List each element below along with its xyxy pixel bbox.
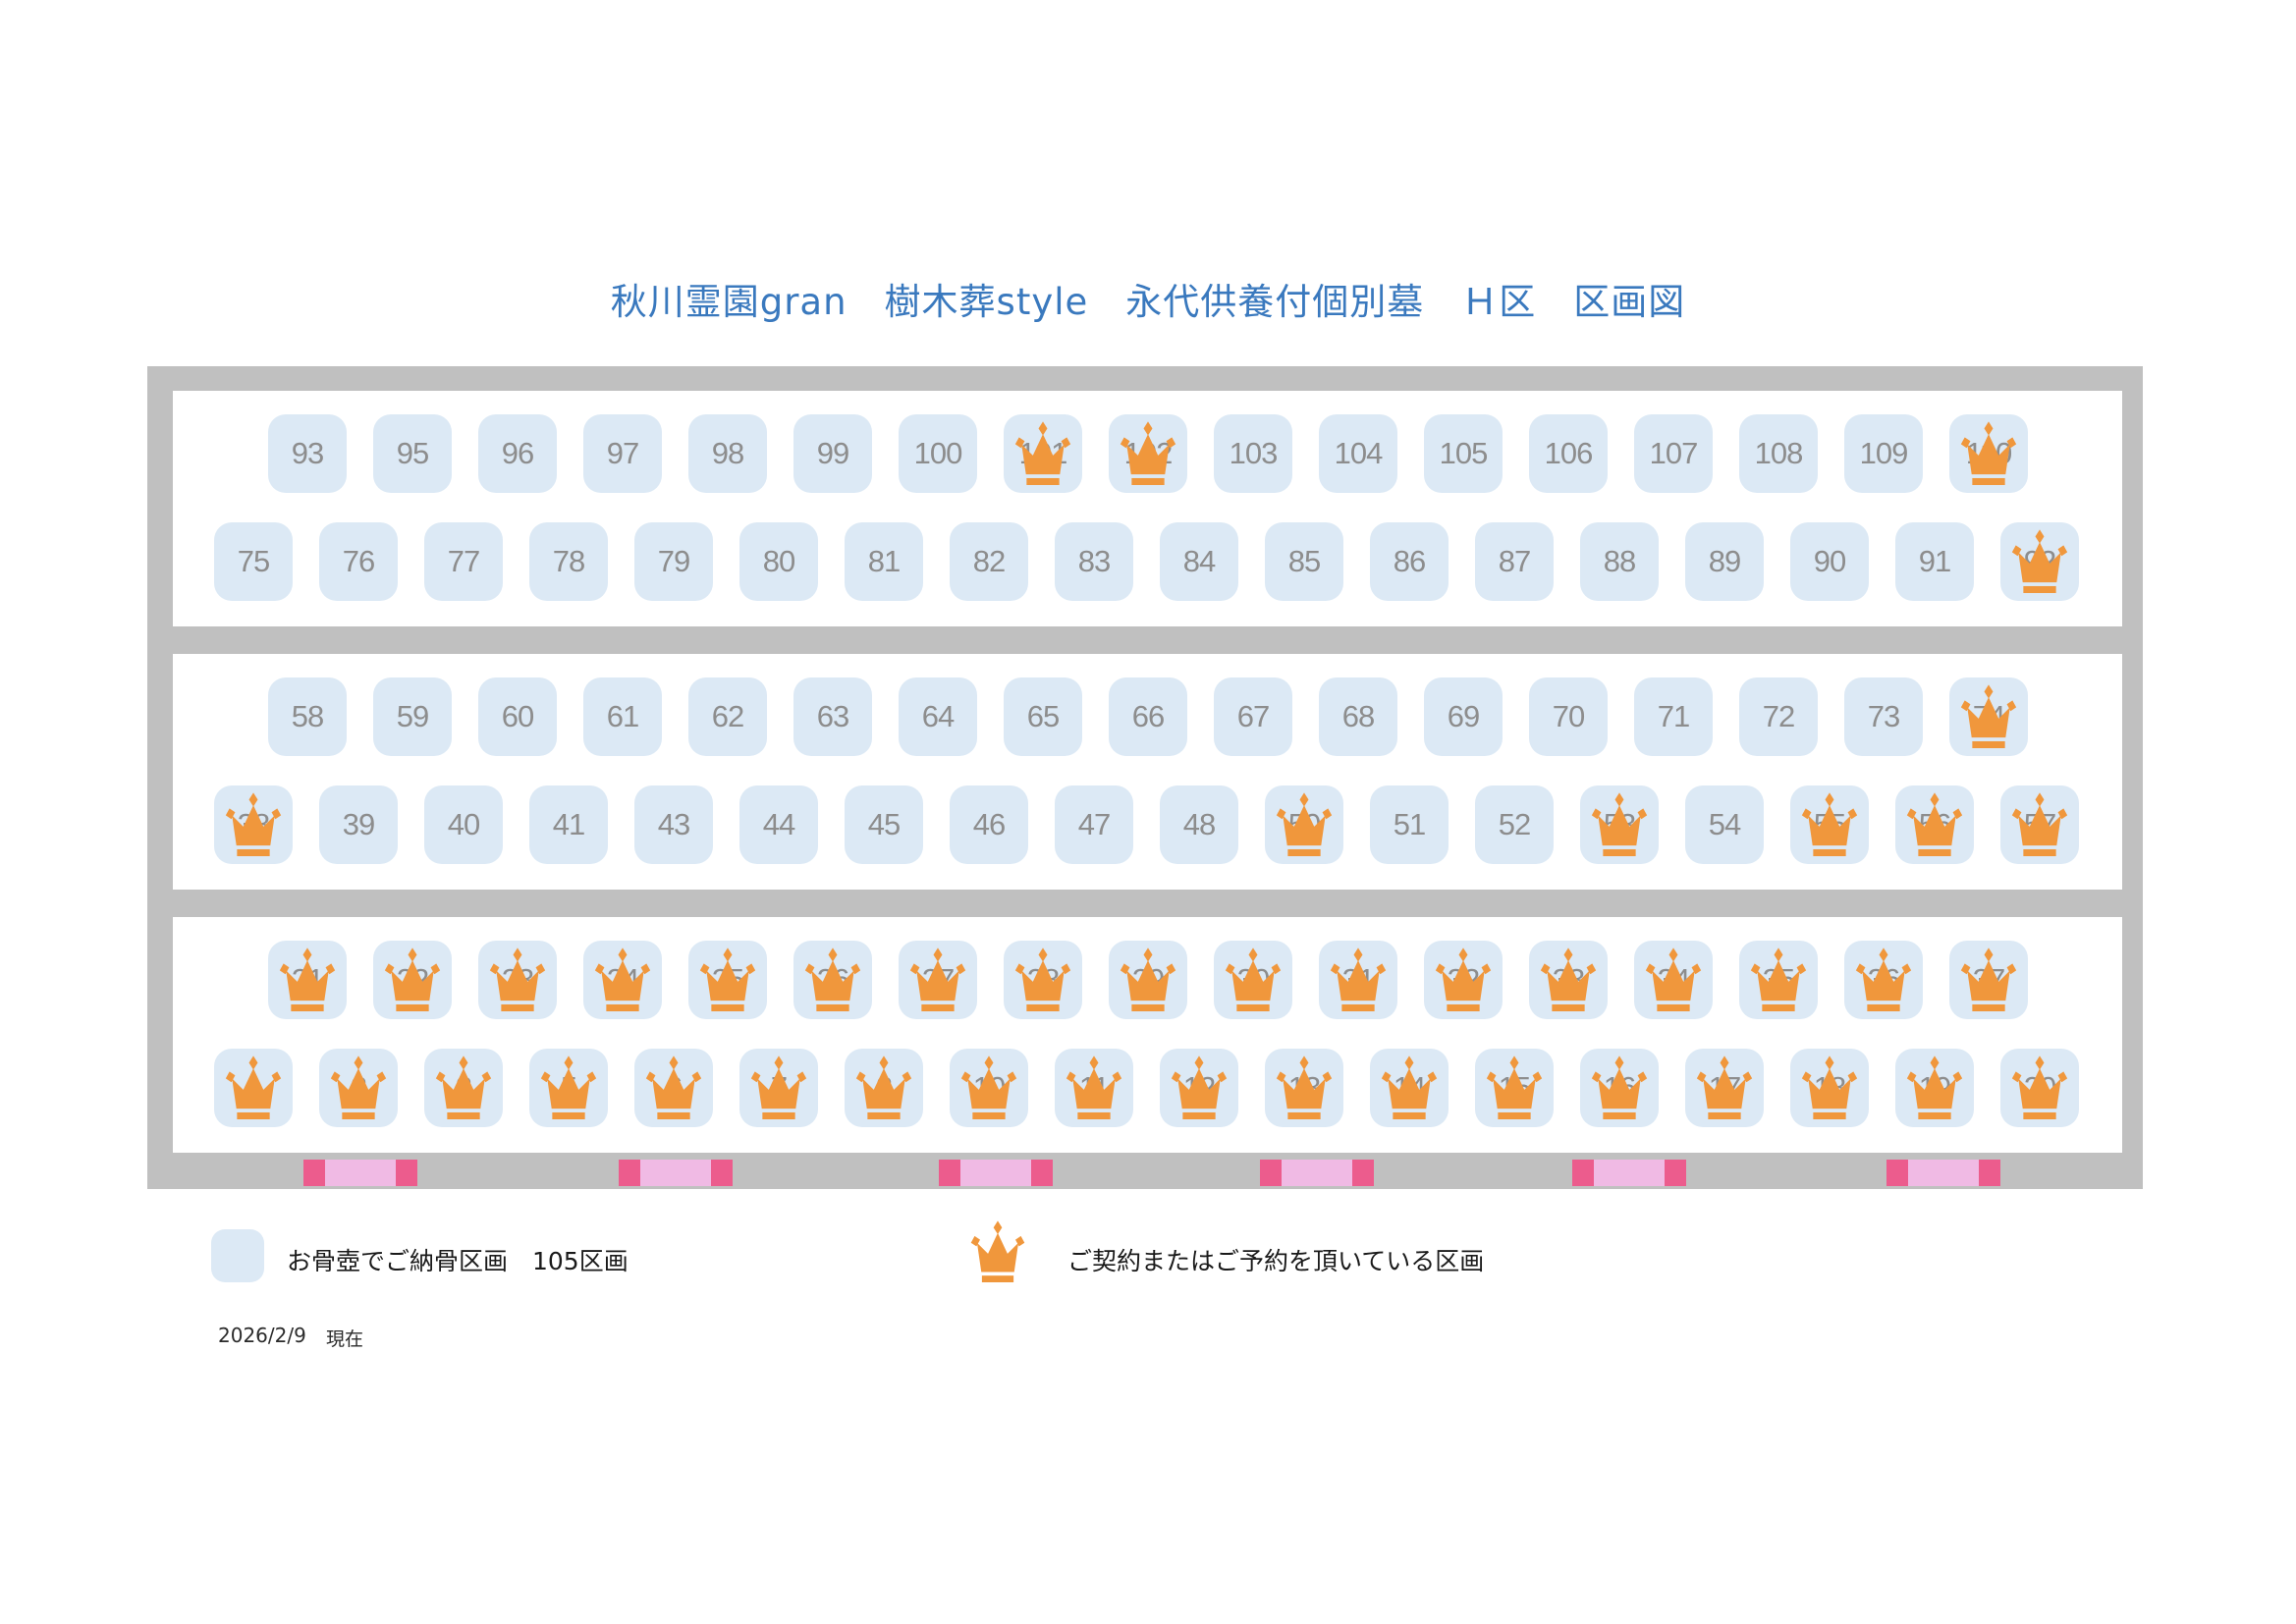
crown-icon xyxy=(1693,1052,1756,1124)
plot-cell-2: 2 xyxy=(319,1049,398,1127)
crown-icon xyxy=(1011,417,1074,490)
plot-cell-107: 107 xyxy=(1634,414,1713,493)
plot-cell-90: 90 xyxy=(1790,522,1869,601)
map-frame: 939596979899100101 102 10310410510610710… xyxy=(147,366,2143,1189)
plot-number: 58 xyxy=(292,699,323,734)
crown-icon xyxy=(1747,944,1810,1016)
marker-dark-segment xyxy=(1260,1160,1282,1186)
footer-date: 2026/2/9 xyxy=(218,1324,306,1347)
plot-number: 41 xyxy=(553,807,584,842)
plot-cell-36: 36 xyxy=(1844,941,1923,1019)
crown-icon xyxy=(381,944,444,1016)
marker-light-segment xyxy=(1908,1160,1979,1186)
plot-cell-74: 74 xyxy=(1949,677,2028,756)
plot-cell-95: 95 xyxy=(373,414,452,493)
plot-cell-56: 56 xyxy=(1895,785,1974,864)
plot-cell-10: 10 xyxy=(950,1049,1028,1127)
marker-light-segment xyxy=(325,1160,396,1186)
page-title: 秋川霊園gran 樹木葬style 永代供養付個別墓 Ｈ区 区画図 xyxy=(0,281,2296,324)
plot-number: 68 xyxy=(1342,699,1374,734)
crown-icon xyxy=(327,1052,390,1124)
plot-number: 81 xyxy=(868,544,900,579)
plot-cell-51: 51 xyxy=(1370,785,1449,864)
plot-cell-6: 6 xyxy=(634,1049,713,1127)
plot-cell-11: 11 xyxy=(1055,1049,1133,1127)
marker-dark-segment xyxy=(711,1160,733,1186)
marker-dark-segment xyxy=(619,1160,640,1186)
crown-icon xyxy=(1327,944,1390,1016)
footer-asof-label: 現在 xyxy=(326,1325,363,1351)
plot-number: 66 xyxy=(1132,699,1164,734)
plot-number: 105 xyxy=(1440,436,1488,471)
plot-cell-21: 21 xyxy=(268,941,347,1019)
map-row-3: 21 22 23 24 25 26 27 xyxy=(173,917,2122,1153)
plot-number: 44 xyxy=(763,807,794,842)
map-row-1: 939596979899100101 102 10310410510610710… xyxy=(173,391,2122,626)
crown-icon xyxy=(222,1052,285,1124)
crown-icon xyxy=(642,1052,705,1124)
crown-icon xyxy=(1273,788,1336,861)
plot-number: 48 xyxy=(1183,807,1215,842)
plot-number: 54 xyxy=(1709,807,1740,842)
plot-number: 64 xyxy=(922,699,954,734)
crown-icon xyxy=(222,788,285,861)
crown-icon xyxy=(1852,944,1915,1016)
plot-cell-19: 19 xyxy=(1895,1049,1974,1127)
plot-number: 89 xyxy=(1709,544,1740,579)
crown-icon xyxy=(537,1052,600,1124)
marker-dark-segment xyxy=(1886,1160,1908,1186)
plot-cell-80: 80 xyxy=(739,522,818,601)
plot-number: 80 xyxy=(763,544,794,579)
plot-number: 46 xyxy=(973,807,1005,842)
crown-icon xyxy=(1798,788,1861,861)
plot-cell-53: 53 xyxy=(1580,785,1659,864)
marker-light-segment xyxy=(640,1160,711,1186)
plot-cell-41: 41 xyxy=(529,785,608,864)
plot-cell-30: 30 xyxy=(1214,941,1292,1019)
plot-number: 88 xyxy=(1604,544,1635,579)
plot-number: 83 xyxy=(1078,544,1110,579)
plot-cell-79: 79 xyxy=(634,522,713,601)
plot-number: 78 xyxy=(553,544,584,579)
plot-cell-88: 88 xyxy=(1580,522,1659,601)
plot-cell-103: 103 xyxy=(1214,414,1292,493)
plot-cell-62: 62 xyxy=(688,677,767,756)
plot-number: 91 xyxy=(1919,544,1950,579)
plot-number: 82 xyxy=(973,544,1005,579)
plot-number: 45 xyxy=(868,807,900,842)
crown-icon xyxy=(1117,417,1179,490)
legend-crown xyxy=(967,1218,1028,1286)
crown-icon xyxy=(1798,1052,1861,1124)
plot-cell-17: 17 xyxy=(1685,1049,1764,1127)
plot-cell-60: 60 xyxy=(478,677,557,756)
plot-line: 939596979899100101 102 10310410510610710… xyxy=(268,414,2028,493)
plot-cell-86: 86 xyxy=(1370,522,1449,601)
plot-cell-31: 31 xyxy=(1319,941,1397,1019)
plot-cell-35: 35 xyxy=(1739,941,1818,1019)
crown-icon xyxy=(1957,680,2020,753)
plot-number: 40 xyxy=(448,807,479,842)
marker-light-segment xyxy=(960,1160,1031,1186)
plot-cell-105: 105 xyxy=(1424,414,1503,493)
plot-cell-87: 87 xyxy=(1475,522,1554,601)
crown-icon xyxy=(1537,944,1600,1016)
plot-number: 84 xyxy=(1183,544,1215,579)
crown-icon xyxy=(1063,1052,1125,1124)
plot-number: 108 xyxy=(1755,436,1803,471)
plot-cell-45: 45 xyxy=(845,785,923,864)
crown-icon xyxy=(801,944,864,1016)
legend-urn-label: お骨壺でご納骨区画 105区画 xyxy=(287,1242,629,1277)
path-marker xyxy=(1572,1160,1686,1186)
plot-cell-34: 34 xyxy=(1634,941,1713,1019)
legend-plot-swatch xyxy=(211,1229,264,1282)
map-row-2: 5859606162636465666768697071727374 38 39… xyxy=(173,654,2122,890)
plot-number: 51 xyxy=(1394,807,1425,842)
plot-line: 38 39404143444546474850 515253 5455 56 5… xyxy=(214,785,2079,864)
plot-cell-46: 46 xyxy=(950,785,1028,864)
plot-cell-32: 32 xyxy=(1424,941,1503,1019)
crown-icon xyxy=(1957,417,2020,490)
plot-cell-25: 25 xyxy=(688,941,767,1019)
plot-cell-64: 64 xyxy=(899,677,977,756)
marker-light-segment xyxy=(1594,1160,1665,1186)
plot-number: 62 xyxy=(712,699,743,734)
plot-number: 77 xyxy=(448,544,479,579)
plot-cell-28: 28 xyxy=(1004,941,1082,1019)
plot-cell-85: 85 xyxy=(1265,522,1343,601)
plot-cell-38: 38 xyxy=(214,785,293,864)
crown-icon xyxy=(2008,525,2071,598)
marker-dark-segment xyxy=(1665,1160,1686,1186)
plot-number: 67 xyxy=(1237,699,1269,734)
plot-cell-89: 89 xyxy=(1685,522,1764,601)
plot-cell-69: 69 xyxy=(1424,677,1503,756)
plot-cell-26: 26 xyxy=(793,941,872,1019)
plot-cell-83: 83 xyxy=(1055,522,1133,601)
plot-cell-82: 82 xyxy=(950,522,1028,601)
crown-icon xyxy=(1432,944,1495,1016)
plot-number: 63 xyxy=(817,699,848,734)
plot-cell-106: 106 xyxy=(1529,414,1608,493)
crown-icon xyxy=(1222,944,1285,1016)
plot-line: 757677787980818283848586878889909192 xyxy=(214,522,2079,601)
plot-cell-91: 91 xyxy=(1895,522,1974,601)
plot-number: 59 xyxy=(397,699,428,734)
plot-number: 93 xyxy=(292,436,323,471)
crown-icon xyxy=(1011,944,1074,1016)
plot-cell-92: 92 xyxy=(2000,522,2079,601)
plot-cell-55: 55 xyxy=(1790,785,1869,864)
plot-cell-44: 44 xyxy=(739,785,818,864)
plot-cell-101: 101 xyxy=(1004,414,1082,493)
crown-icon xyxy=(1903,1052,1966,1124)
plot-line: 5859606162636465666768697071727374 xyxy=(268,677,2028,756)
crown-icon xyxy=(486,944,549,1016)
plot-number: 106 xyxy=(1545,436,1593,471)
plot-number: 39 xyxy=(343,807,374,842)
marker-light-segment xyxy=(1282,1160,1352,1186)
crown-icon xyxy=(1378,1052,1441,1124)
plot-cell-61: 61 xyxy=(583,677,662,756)
crown-icon xyxy=(967,1218,1028,1286)
crown-icon xyxy=(1273,1052,1336,1124)
crown-icon xyxy=(276,944,339,1016)
path-marker xyxy=(619,1160,733,1186)
plot-cell-100: 100 xyxy=(899,414,977,493)
crown-icon xyxy=(1168,1052,1230,1124)
plot-number: 90 xyxy=(1814,544,1845,579)
plot-number: 107 xyxy=(1650,436,1698,471)
plot-cell-7: 7 xyxy=(739,1049,818,1127)
plot-number: 87 xyxy=(1499,544,1530,579)
plot-cell-66: 66 xyxy=(1109,677,1187,756)
plot-number: 69 xyxy=(1448,699,1479,734)
plot-number: 85 xyxy=(1288,544,1320,579)
plot-cell-54: 54 xyxy=(1685,785,1764,864)
crown-icon xyxy=(1903,788,1966,861)
plot-cell-68: 68 xyxy=(1319,677,1397,756)
plot-cell-18: 18 xyxy=(1790,1049,1869,1127)
crown-icon xyxy=(852,1052,915,1124)
plot-number: 60 xyxy=(502,699,533,734)
plot-cell-13: 13 xyxy=(1265,1049,1343,1127)
plot-number: 98 xyxy=(712,436,743,471)
path-marker xyxy=(939,1160,1053,1186)
crown-icon xyxy=(1642,944,1705,1016)
plot-cell-24: 24 xyxy=(583,941,662,1019)
plot-number: 71 xyxy=(1658,699,1689,734)
plot-cell-67: 67 xyxy=(1214,677,1292,756)
plot-number: 95 xyxy=(397,436,428,471)
crown-icon xyxy=(2008,788,2071,861)
crown-icon xyxy=(432,1052,495,1124)
plot-cell-37: 37 xyxy=(1949,941,2028,1019)
plot-number: 65 xyxy=(1027,699,1059,734)
plot-cell-20: 20 xyxy=(2000,1049,2079,1127)
plot-number: 86 xyxy=(1394,544,1425,579)
plot-cell-99: 99 xyxy=(793,414,872,493)
plot-cell-3: 3 xyxy=(424,1049,503,1127)
plot-number: 79 xyxy=(658,544,689,579)
plot-cell-39: 39 xyxy=(319,785,398,864)
plot-cell-59: 59 xyxy=(373,677,452,756)
plot-line: 21 22 23 24 25 26 27 xyxy=(268,941,2028,1019)
marker-dark-segment xyxy=(1352,1160,1374,1186)
plot-number: 109 xyxy=(1860,436,1908,471)
plot-cell-78: 78 xyxy=(529,522,608,601)
plot-number: 47 xyxy=(1078,807,1110,842)
plot-cell-77: 77 xyxy=(424,522,503,601)
plot-cell-8: 8 xyxy=(845,1049,923,1127)
marker-dark-segment xyxy=(1031,1160,1053,1186)
plot-cell-33: 33 xyxy=(1529,941,1608,1019)
crown-icon xyxy=(747,1052,810,1124)
crown-icon xyxy=(2008,1052,2071,1124)
crown-icon xyxy=(957,1052,1020,1124)
crown-icon xyxy=(1588,1052,1651,1124)
plot-cell-58: 58 xyxy=(268,677,347,756)
path-marker xyxy=(1886,1160,2000,1186)
plot-cell-110: 110 xyxy=(1949,414,2028,493)
plot-cell-27: 27 xyxy=(899,941,977,1019)
plot-number: 103 xyxy=(1230,436,1278,471)
crown-icon xyxy=(1957,944,2020,1016)
plot-cell-12: 12 xyxy=(1160,1049,1238,1127)
plot-cell-23: 23 xyxy=(478,941,557,1019)
plot-cell-57: 57 xyxy=(2000,785,2079,864)
plot-number: 73 xyxy=(1868,699,1899,734)
legend-reserved-label: ご契約またはご予約を頂いている区画 xyxy=(1067,1242,1484,1277)
plot-cell-50: 50 xyxy=(1265,785,1343,864)
plot-cell-72: 72 xyxy=(1739,677,1818,756)
plot-cell-98: 98 xyxy=(688,414,767,493)
plot-cell-14: 14 xyxy=(1370,1049,1449,1127)
plot-number: 99 xyxy=(817,436,848,471)
path-marker xyxy=(303,1160,417,1186)
page: 秋川霊園gran 樹木葬style 永代供養付個別墓 Ｈ区 区画図 939596… xyxy=(0,0,2296,1624)
crown-icon xyxy=(696,944,759,1016)
plot-cell-93: 93 xyxy=(268,414,347,493)
plot-cell-76: 76 xyxy=(319,522,398,601)
plot-cell-97: 97 xyxy=(583,414,662,493)
plot-cell-71: 71 xyxy=(1634,677,1713,756)
crown-icon xyxy=(591,944,654,1016)
plot-number: 43 xyxy=(658,807,689,842)
plot-cell-84: 84 xyxy=(1160,522,1238,601)
plot-cell-104: 104 xyxy=(1319,414,1397,493)
marker-dark-segment xyxy=(396,1160,417,1186)
plot-number: 104 xyxy=(1335,436,1383,471)
plot-cell-102: 102 xyxy=(1109,414,1187,493)
marker-dark-segment xyxy=(1572,1160,1594,1186)
plot-cell-81: 81 xyxy=(845,522,923,601)
plot-cell-75: 75 xyxy=(214,522,293,601)
plot-cell-73: 73 xyxy=(1844,677,1923,756)
plot-number: 52 xyxy=(1499,807,1530,842)
marker-dark-segment xyxy=(1979,1160,2000,1186)
plot-cell-52: 52 xyxy=(1475,785,1554,864)
plot-number: 96 xyxy=(502,436,533,471)
plot-cell-47: 47 xyxy=(1055,785,1133,864)
crown-icon xyxy=(1588,788,1651,861)
plot-line: 1 2 3 5 6 7 8 xyxy=(214,1049,2079,1127)
plot-number: 61 xyxy=(607,699,638,734)
plot-cell-15: 15 xyxy=(1475,1049,1554,1127)
plot-cell-108: 108 xyxy=(1739,414,1818,493)
plot-cell-70: 70 xyxy=(1529,677,1608,756)
plot-number: 97 xyxy=(607,436,638,471)
plot-cell-5: 5 xyxy=(529,1049,608,1127)
crown-icon xyxy=(906,944,969,1016)
plot-cell-29: 29 xyxy=(1109,941,1187,1019)
marker-dark-segment xyxy=(939,1160,960,1186)
plot-cell-43: 43 xyxy=(634,785,713,864)
plot-number: 76 xyxy=(343,544,374,579)
plot-number: 72 xyxy=(1763,699,1794,734)
marker-dark-segment xyxy=(303,1160,325,1186)
plot-cell-22: 22 xyxy=(373,941,452,1019)
plot-number: 100 xyxy=(914,436,962,471)
plot-cell-16: 16 xyxy=(1580,1049,1659,1127)
plot-number: 70 xyxy=(1553,699,1584,734)
plot-cell-96: 96 xyxy=(478,414,557,493)
plot-cell-109: 109 xyxy=(1844,414,1923,493)
crown-icon xyxy=(1483,1052,1546,1124)
plot-cell-63: 63 xyxy=(793,677,872,756)
plot-cell-1: 1 xyxy=(214,1049,293,1127)
plot-cell-48: 48 xyxy=(1160,785,1238,864)
plot-cell-65: 65 xyxy=(1004,677,1082,756)
path-marker xyxy=(1260,1160,1374,1186)
crown-icon xyxy=(1117,944,1179,1016)
plot-cell-40: 40 xyxy=(424,785,503,864)
plot-number: 75 xyxy=(238,544,269,579)
